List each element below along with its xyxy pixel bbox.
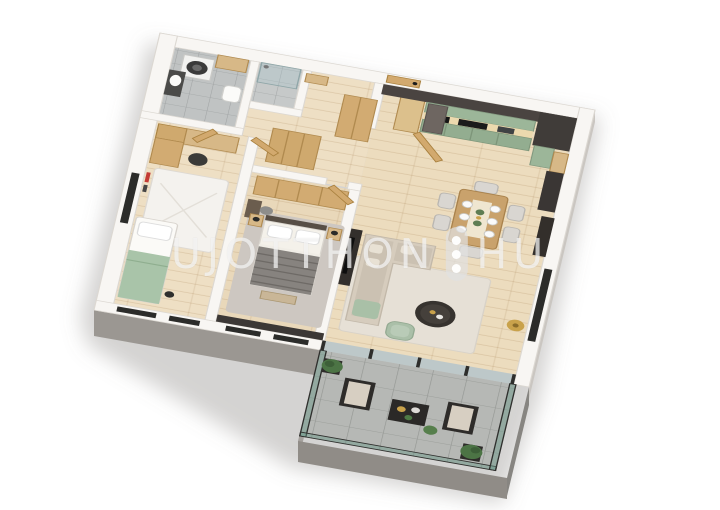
floor-plan-scene: UJOTTHON HU bbox=[0, 0, 720, 510]
chair bbox=[437, 192, 456, 209]
chair bbox=[432, 214, 451, 231]
tall-dark-units bbox=[532, 112, 577, 152]
chair bbox=[506, 205, 525, 222]
plan-svg bbox=[0, 0, 720, 510]
desk-return bbox=[150, 138, 184, 168]
toilet bbox=[221, 85, 242, 103]
chair bbox=[501, 226, 520, 243]
